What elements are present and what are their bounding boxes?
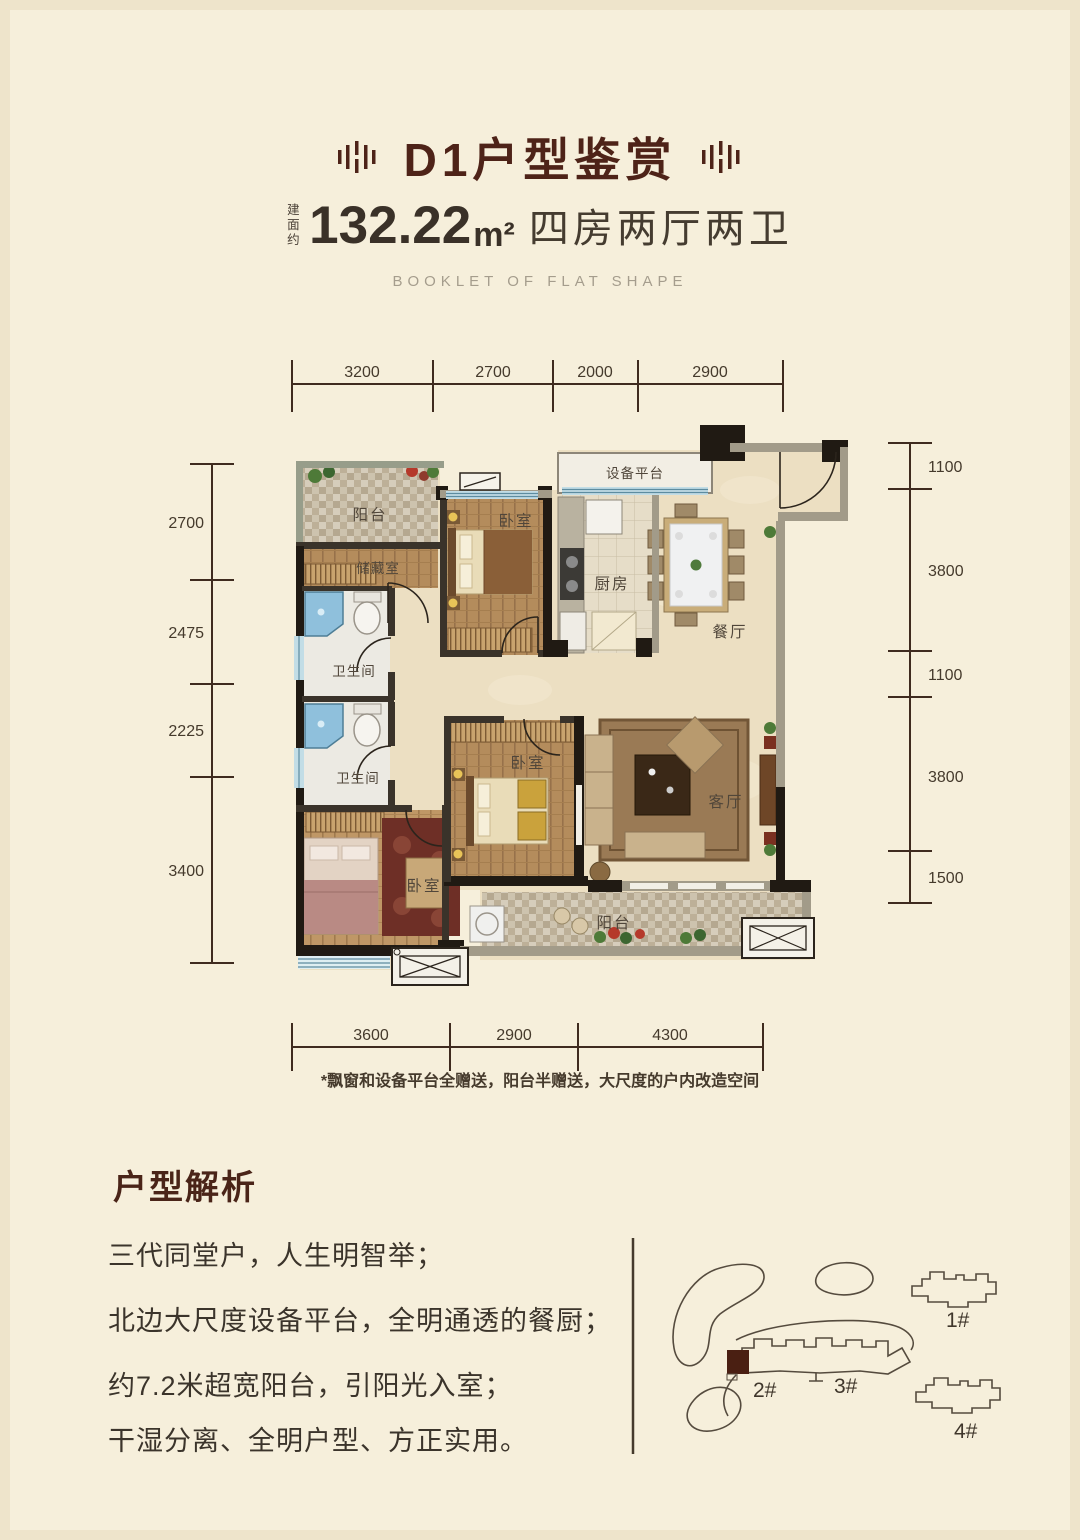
building-2-label: 2#: [753, 1379, 777, 1402]
analysis-point-4: 干湿分离、全明户型、方正实用。: [108, 1419, 528, 1458]
room-label-balcony-south: 阳台: [596, 914, 631, 932]
unit-location-highlight: [727, 1350, 749, 1374]
analysis-point-3: 约7.2米超宽阳台，引阳光入室；: [108, 1364, 513, 1403]
building-3-label: 3#: [834, 1375, 858, 1398]
room-bedroom-middle: [448, 720, 578, 880]
room-bath-1: [302, 588, 390, 700]
layout-text: 四房两厅两卫: [529, 196, 793, 254]
dim-right-1: 1100: [928, 459, 963, 476]
area-prefix: 建面约: [287, 203, 302, 248]
dimensions-top: 3200 2700 2000 2900: [292, 360, 783, 412]
room-label-bath-1: 卫生间: [332, 664, 376, 679]
page-title: D1户型鉴赏: [404, 124, 677, 190]
dimensions-bottom: 3600 2900 4300: [292, 1023, 763, 1071]
bay-window-southwest: [392, 948, 468, 985]
room-kitchen: [558, 493, 658, 653]
dim-left-2: 2475: [168, 625, 204, 642]
dim-bottom-1: 3600: [353, 1027, 389, 1044]
room-label-equipment-platform: 设备平台: [606, 465, 664, 481]
dimensions-left: 2700 2475 2225 3400: [168, 464, 234, 963]
analysis-point-2: 北边大尺度设备平台，全明通透的餐厨；: [108, 1299, 612, 1338]
room-label-dining: 餐厅: [712, 623, 747, 641]
dim-left-4: 3400: [168, 863, 204, 880]
site-plan: 1# 2# 3# 4#: [620, 1230, 1070, 1500]
room-label-kitchen: 厨房: [594, 575, 629, 593]
room-balcony-north: [302, 465, 439, 546]
analysis-point-1: 三代同堂户，人生明智举；: [108, 1234, 444, 1273]
dim-top-2: 2700: [475, 364, 511, 381]
building-4-label: 4#: [954, 1420, 978, 1443]
area-value: 132.22: [309, 199, 471, 252]
floor-plan: 阳台 储藏室 卫生间 卫生间 卧室 卧室 卧室 厨房 餐厅 客厅 设备平台 阳台…: [130, 340, 1010, 1110]
title-row: D1户型鉴赏: [0, 124, 1080, 190]
dim-bottom-3: 4300: [652, 1027, 688, 1044]
subtitle-en: BOOKLET OF FLAT SHAPE: [0, 273, 1080, 290]
area-row: 建面约 132.22 m² 四房两厅两卫: [0, 196, 1080, 254]
building-1-label: 1#: [946, 1309, 970, 1332]
area-unit: m²: [473, 218, 515, 252]
room-label-bedroom-middle: 卧室: [510, 754, 545, 772]
room-label-balcony-north: 阳台: [352, 506, 387, 524]
room-label-living: 客厅: [708, 793, 743, 811]
dim-right-5: 1500: [928, 870, 964, 887]
title-ornament-left-icon: [336, 135, 380, 179]
dim-left-1: 2700: [168, 515, 204, 532]
dimensions-right: 1100 3800 1100 3800 1500: [888, 443, 964, 903]
dim-right-4: 3800: [928, 769, 964, 786]
flyer-page: D1户型鉴赏 建面约 132.22 m² 四房两厅两卫 BOOKLET OF F…: [0, 0, 1080, 1540]
dim-right-3: 1100: [928, 667, 963, 684]
room-label-bedroom-north: 卧室: [498, 512, 533, 530]
site-labels: 1# 2# 3# 4#: [753, 1309, 978, 1443]
site-roads: [673, 1263, 913, 1431]
dim-right-2: 3800: [928, 563, 964, 580]
analysis-heading: 户型解析: [113, 1160, 257, 1209]
dim-top-1: 3200: [344, 364, 380, 381]
room-label-bedroom-southwest: 卧室: [406, 877, 441, 895]
room-bath-2: [302, 700, 390, 810]
dim-top-3: 2000: [577, 364, 613, 381]
room-label-bath-2: 卫生间: [336, 771, 380, 786]
room-label-storage: 储藏室: [356, 560, 400, 576]
title-ornament-right-icon: [700, 135, 744, 179]
dim-top-4: 2900: [692, 364, 728, 381]
bay-window-southeast: [742, 918, 814, 958]
dim-left-3: 2225: [168, 723, 204, 740]
dim-bottom-2: 2900: [496, 1027, 532, 1044]
giveaway-note: *飘窗和设备平台全赠送，阳台半赠送，大尺度的户内改造空间: [321, 1071, 759, 1090]
